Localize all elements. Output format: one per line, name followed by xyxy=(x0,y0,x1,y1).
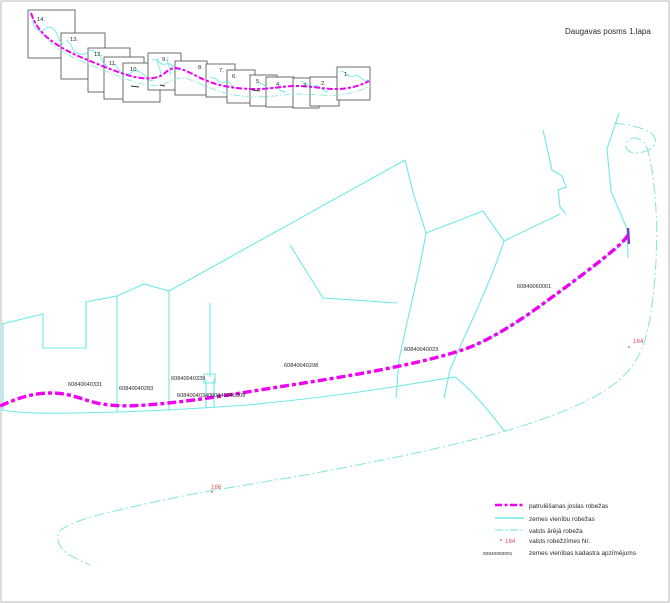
state-border-line xyxy=(58,123,657,565)
border-mark-dot xyxy=(628,346,630,348)
legend-border-mark-dot xyxy=(500,539,502,541)
legend-cadastre-sample: 60840050001 xyxy=(483,551,513,557)
parcel-boundary-along-patrol xyxy=(465,234,628,349)
legend: patrulēšanas joslas robežas zemes vienīb… xyxy=(483,503,636,557)
index-tile-label: 7. xyxy=(219,68,224,74)
index-map: 14. 13. 12. 11. 10. 9. 8. 7. 6. 5. 4. 3.… xyxy=(28,10,370,108)
index-tile-label: 10. xyxy=(130,67,138,73)
cadastral-map-canvas: 60840040331 60840040283 60840040339 6084… xyxy=(0,0,670,603)
parcel-boundary-mid-right xyxy=(426,211,560,241)
patrol-strip-line xyxy=(0,233,629,406)
main-map: 60840040331 60840040283 60840040339 6084… xyxy=(0,113,657,565)
parcel-boundary-step xyxy=(290,245,397,303)
parcel-boundary-east-023 xyxy=(444,241,504,398)
index-tile-label: 1. xyxy=(344,72,349,78)
index-tile-label: 6. xyxy=(232,74,237,80)
parcel-label: 60840040023 xyxy=(404,347,438,353)
index-tile-label: 12. xyxy=(94,52,102,58)
parcel-labels: 60840040331 60840040283 60840040339 6084… xyxy=(68,284,551,399)
legend-label: valsts ārējā robeža xyxy=(529,528,583,535)
border-mark-label: 166 xyxy=(211,484,222,491)
parcel-label: 60840040309 xyxy=(211,393,245,399)
border-mark-dot xyxy=(211,491,213,493)
page-title: Daugavas posms 1.lapa xyxy=(565,27,651,36)
parcel-boundary-topright-zigzag xyxy=(543,130,566,214)
legend-label: patrulēšanas joslas robežas xyxy=(529,503,608,510)
legend-label: zemes vienību robežas xyxy=(529,516,595,523)
border-marks: 164 166 xyxy=(211,338,644,493)
parcel-label: 60840060001 xyxy=(517,284,551,290)
legend-label: valsts robežzīmes Nr. xyxy=(529,538,590,545)
index-tile-label: 14. xyxy=(37,17,45,23)
index-tile-label: 5. xyxy=(256,79,261,85)
parcel-label: 60840040283 xyxy=(119,386,153,392)
index-tile-label: 4. xyxy=(276,82,281,88)
index-tiles xyxy=(28,10,370,108)
map-sheet-page: 60840040331 60840040283 60840040339 6084… xyxy=(0,0,670,603)
index-tile-label: 3. xyxy=(303,83,308,89)
legend-border-mark-sample: 164 xyxy=(505,538,516,545)
border-mark-label: 164 xyxy=(633,338,644,345)
index-tile-label: 9. xyxy=(162,57,167,63)
parcel-label: 60840040339 xyxy=(171,376,205,382)
parcel-label: 60840040331 xyxy=(68,382,102,388)
parcel-boundary-top-diagonal xyxy=(2,160,405,348)
index-tile-label: 2. xyxy=(321,81,326,87)
parcel-label: 60840040340 xyxy=(177,393,211,399)
legend-label: zemes vienības kadastra apzīmējums xyxy=(529,550,636,557)
index-tile-label: 8. xyxy=(198,65,203,71)
parcel-label: 60840040298 xyxy=(284,363,318,369)
parcel-boundary-right-vertical xyxy=(607,113,628,258)
patrol-strip-end-tick xyxy=(628,228,629,244)
index-tile-label: 11. xyxy=(109,61,117,67)
index-tile-label: 13. xyxy=(70,37,78,43)
